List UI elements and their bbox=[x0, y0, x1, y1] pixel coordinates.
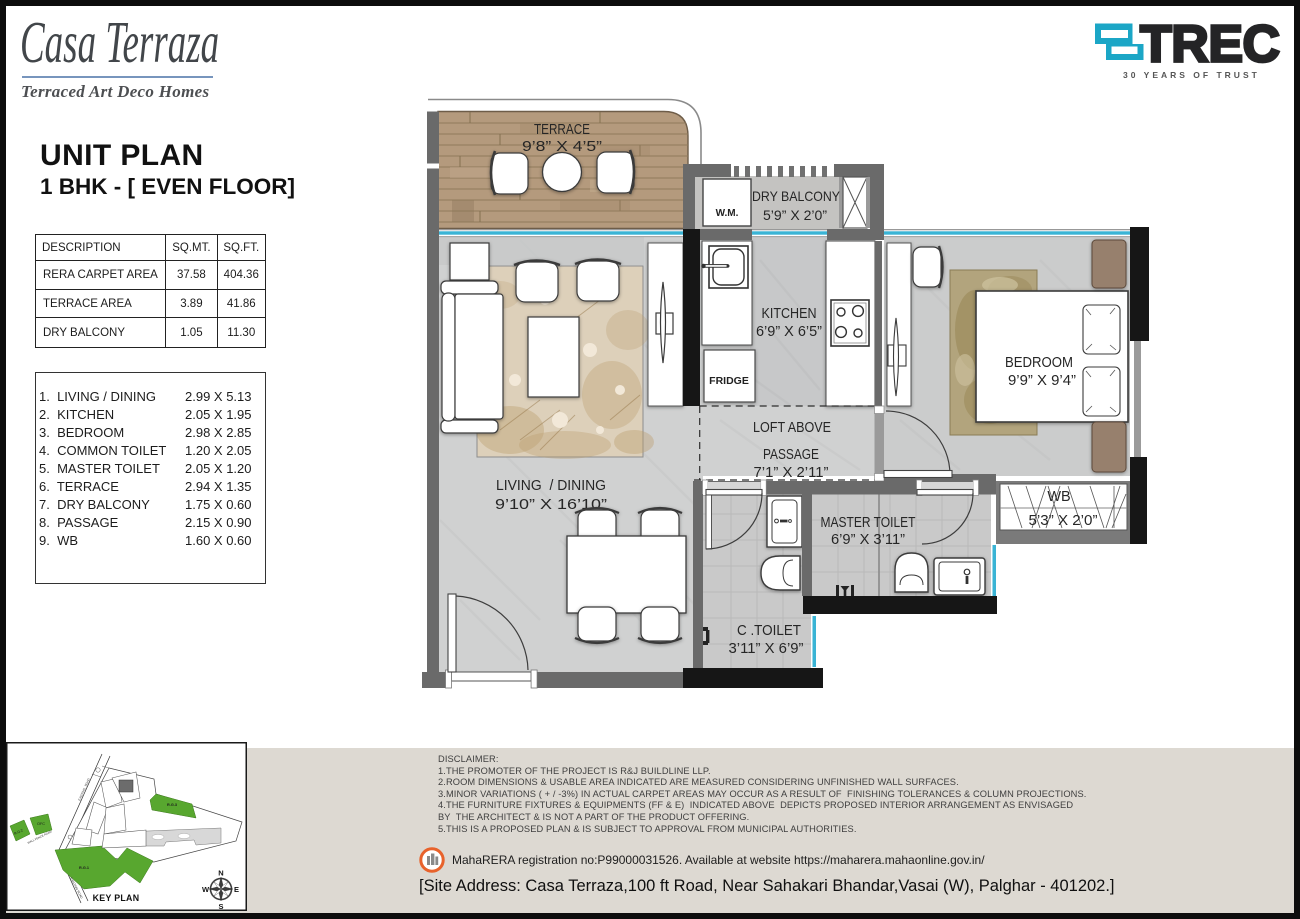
svg-text:S: S bbox=[218, 902, 223, 911]
svg-text:5’3” X 2’0”: 5’3” X 2’0” bbox=[1029, 513, 1098, 529]
svg-text:FRIDGE: FRIDGE bbox=[709, 375, 749, 387]
svg-text:30 YEARS OF TRUST: 30 YEARS OF TRUST bbox=[1123, 70, 1260, 80]
svg-text:R.G.1: R.G.1 bbox=[79, 866, 89, 870]
svg-text:3’11” X 6’9”: 3’11” X 6’9” bbox=[729, 641, 804, 657]
svg-text:DRY BALCONY: DRY BALCONY bbox=[752, 188, 841, 204]
svg-text:N: N bbox=[218, 869, 223, 878]
svg-text:W.M.: W.M. bbox=[716, 208, 739, 219]
svg-text:E: E bbox=[234, 885, 239, 894]
svg-text:MASTER TOILET: MASTER TOILET bbox=[821, 515, 916, 531]
svg-text:5’9” X 2’0”: 5’9” X 2’0” bbox=[763, 207, 827, 223]
svg-text:WB: WB bbox=[1047, 489, 1070, 505]
svg-text:9’9” X 9’4”: 9’9” X 9’4” bbox=[1008, 372, 1076, 389]
svg-text:6’9” X 6’5”: 6’9” X 6’5” bbox=[756, 324, 822, 340]
svg-text:TREC: TREC bbox=[1140, 16, 1280, 74]
svg-text:OFC: OFC bbox=[37, 822, 45, 826]
svg-text:LIVING / DINING: LIVING / DINING bbox=[496, 477, 606, 494]
svg-text:BEDROOM: BEDROOM bbox=[1005, 354, 1073, 371]
svg-text:6’9” X 3’11”: 6’9” X 3’11” bbox=[831, 532, 905, 548]
svg-text:KEY PLAN: KEY PLAN bbox=[93, 893, 140, 903]
svg-text:TERRACE: TERRACE bbox=[534, 121, 590, 138]
svg-text:C .TOILET: C .TOILET bbox=[737, 623, 801, 639]
svg-text:PASSAGE: PASSAGE bbox=[763, 446, 819, 463]
svg-text:W: W bbox=[202, 885, 210, 894]
svg-text:7’1” X 2’11”: 7’1” X 2’11” bbox=[754, 464, 829, 481]
svg-text:LOFT ABOVE: LOFT ABOVE bbox=[753, 419, 831, 436]
svg-text:KITCHEN: KITCHEN bbox=[762, 306, 817, 322]
svg-text:R.G.3: R.G.3 bbox=[167, 803, 177, 807]
